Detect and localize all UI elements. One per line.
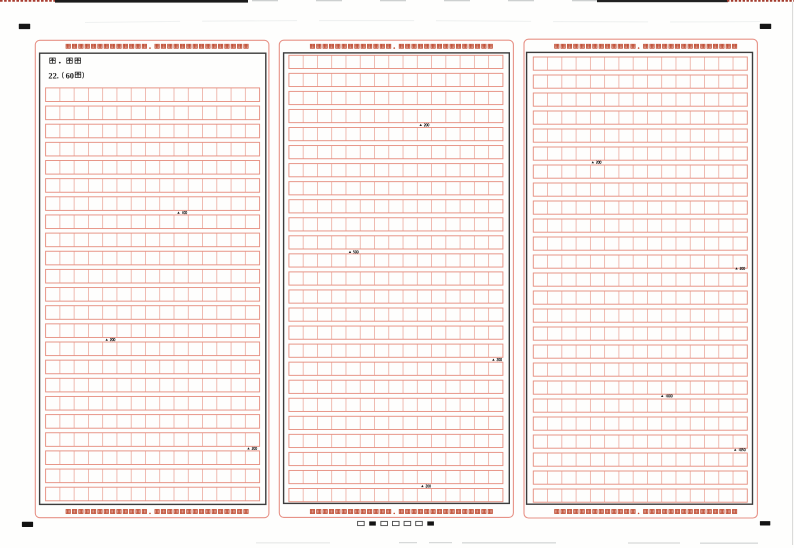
svg-text:22.: 22. bbox=[48, 71, 58, 80]
svg-text:60: 60 bbox=[66, 71, 74, 80]
